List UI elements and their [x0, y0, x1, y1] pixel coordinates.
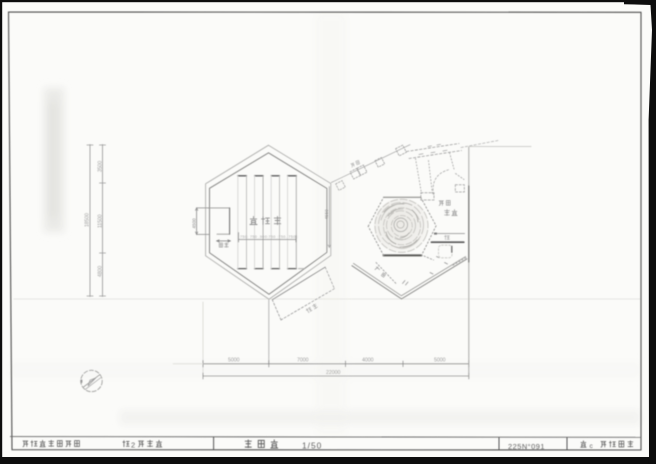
svg-text:225N°091: 225N°091 — [508, 442, 545, 451]
svg-text:c: c — [590, 443, 594, 450]
svg-text:4550: 4550 — [324, 209, 329, 220]
svg-text:750: 750 .900:750 :750. 750 :: 750: 750 .900:750 :750. 750 : — [240, 235, 298, 239]
svg-text:22000: 22000 — [326, 370, 341, 376]
svg-text:18500: 18500 — [85, 213, 91, 227]
svg-text:5000: 5000 — [228, 358, 240, 364]
svg-text:4000: 4000 — [362, 358, 374, 364]
svg-text:4800: 4800 — [98, 266, 104, 277]
svg-text:2: 2 — [131, 440, 135, 449]
svg-text:1/50: 1/50 — [302, 441, 322, 451]
svg-text:5000: 5000 — [434, 358, 446, 364]
svg-text:3500: 3500 — [98, 161, 104, 172]
svg-text:4500: 4500 — [192, 218, 197, 229]
svg-text:7000: 7000 — [297, 358, 309, 364]
svg-text:11500: 11500 — [98, 214, 104, 228]
